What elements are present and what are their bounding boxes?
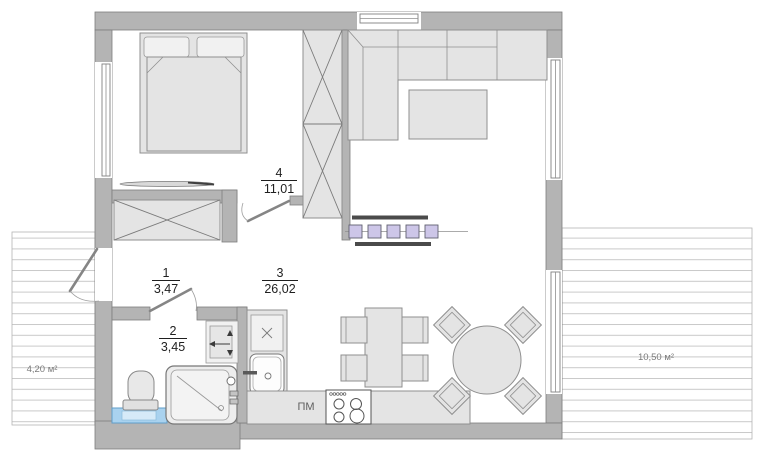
hall-closet xyxy=(114,200,220,240)
chair xyxy=(402,317,428,343)
terrace-right xyxy=(562,228,752,439)
svg-text:1: 1 xyxy=(163,266,170,280)
chair xyxy=(402,355,428,381)
closet-side-wall xyxy=(222,190,237,242)
dining-table xyxy=(453,326,521,394)
terrace-right-area-label: 10,50 м² xyxy=(638,352,674,363)
blanket xyxy=(147,57,241,151)
svg-text:11,01: 11,01 xyxy=(264,182,294,196)
island-table xyxy=(365,308,402,387)
window-left xyxy=(95,62,112,178)
entrance-opening xyxy=(95,248,112,301)
room-label-bathroom: 2 3,45 xyxy=(159,324,187,354)
pillow-left xyxy=(144,37,189,57)
window-right-lower xyxy=(546,270,562,394)
top-wall xyxy=(95,12,562,30)
radiator xyxy=(345,216,468,247)
shower-head xyxy=(227,377,235,385)
floor-plan: ПМ xyxy=(0,0,765,463)
dining-area xyxy=(434,307,542,415)
wardrobe xyxy=(303,30,342,218)
washing-machine xyxy=(206,321,238,363)
living-room xyxy=(345,30,547,246)
bedroom-door xyxy=(242,201,289,221)
svg-text:3,45: 3,45 xyxy=(161,340,185,354)
svg-text:2: 2 xyxy=(170,324,177,338)
room-label-living-kitchen: 3 26,02 xyxy=(262,266,298,296)
room-label-hall: 1 3,47 xyxy=(152,266,180,296)
svg-text:4: 4 xyxy=(276,166,283,180)
floor-plan-drawing: ПМ xyxy=(0,0,765,463)
bottom-wall-left xyxy=(95,421,240,449)
faucet xyxy=(243,371,257,375)
pillow-right xyxy=(197,37,244,57)
chair xyxy=(341,355,367,381)
kitchen-appliance-x xyxy=(251,315,283,351)
bathroom-north-wall-left xyxy=(112,307,150,320)
svg-text:26,02: 26,02 xyxy=(264,282,295,296)
dishwasher-label: ПМ xyxy=(297,401,314,413)
window-right-upper xyxy=(546,58,562,180)
shower-cabin xyxy=(166,366,238,424)
coffee-table xyxy=(409,90,487,139)
stove xyxy=(326,390,371,424)
bathroom-kitchen-wall xyxy=(237,307,247,423)
chair xyxy=(341,317,367,343)
window-top xyxy=(357,12,421,30)
bottom-wall xyxy=(237,423,562,439)
terrace-left xyxy=(12,232,95,425)
room-label-bedroom: 4 11,01 xyxy=(261,166,297,196)
svg-text:3: 3 xyxy=(277,266,284,280)
svg-text:3,47: 3,47 xyxy=(154,282,178,296)
door-stub xyxy=(290,196,303,205)
terrace-left-area-label: 4,20 м² xyxy=(27,364,58,375)
toilet xyxy=(123,371,158,410)
